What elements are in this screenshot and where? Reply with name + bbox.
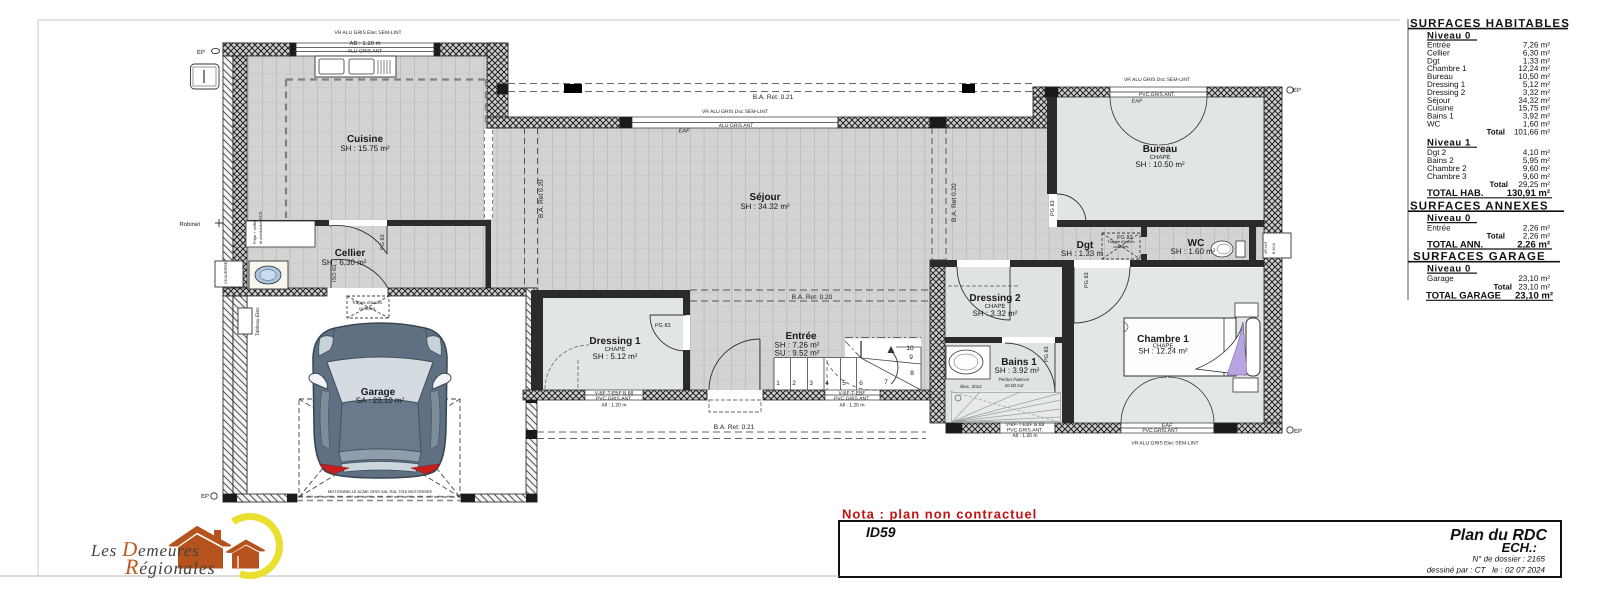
svg-text:SU : 9.52 m²: SU : 9.52 m² bbox=[775, 349, 820, 358]
svg-text:8: 8 bbox=[910, 370, 914, 377]
svg-text:Total: Total bbox=[1489, 180, 1508, 189]
svg-text:combles: combles bbox=[1114, 244, 1129, 249]
svg-text:B.A. Ret: 0.21: B.A. Ret: 0.21 bbox=[753, 94, 794, 101]
svg-text:CHAUDIERE: CHAUDIERE bbox=[224, 261, 228, 284]
svg-text:6: 6 bbox=[859, 380, 863, 387]
svg-text:Garage: Garage bbox=[1427, 274, 1454, 283]
svg-text:SH : 1.60 m²: SH : 1.60 m² bbox=[1171, 247, 1216, 256]
svg-text:B.A. Ret: 0.21: B.A. Ret: 0.21 bbox=[714, 424, 755, 431]
svg-text:ALU GRIS ANT: ALU GRIS ANT bbox=[348, 49, 382, 55]
svg-text:SH : 1.33 m: SH : 1.33 m bbox=[1061, 249, 1104, 258]
svg-text:3: 3 bbox=[809, 380, 813, 387]
svg-text:PVC.GRIS.ANT.: PVC.GRIS.ANT. bbox=[834, 396, 870, 402]
svg-text:2: 2 bbox=[792, 380, 796, 387]
svg-text:EP: EP bbox=[1294, 428, 1302, 435]
svg-text:PVC.GRIS.ANT.: PVC.GRIS.ANT. bbox=[596, 396, 632, 402]
svg-text:All : 1.20 m: All : 1.20 m bbox=[839, 403, 864, 409]
svg-text:Régionales: Régionales bbox=[124, 554, 215, 579]
svg-text:EP: EP bbox=[201, 493, 209, 500]
svg-text:B.A. Ret 0.20: B.A. Ret 0.20 bbox=[538, 179, 545, 218]
svg-text:1: 1 bbox=[776, 380, 780, 387]
svg-text:N° de dossier : 2165: N° de dossier : 2165 bbox=[1472, 555, 1545, 564]
svg-text:Nota : plan non contractuel: Nota : plan non contractuel bbox=[842, 507, 1037, 522]
svg-text:ECH.:: ECH.: bbox=[1502, 540, 1537, 555]
svg-text:Trappe d'accès: Trappe d'accès bbox=[352, 300, 383, 305]
svg-text:EP: EP bbox=[197, 49, 205, 56]
svg-text:All : 1.20 m: All : 1.20 m bbox=[601, 403, 626, 409]
svg-text:10.00 m2: 10.00 m2 bbox=[1005, 383, 1024, 388]
svg-text:VR-LNT: VR-LNT bbox=[1264, 240, 1268, 254]
svg-text:PG 83: PG 83 bbox=[655, 323, 671, 329]
svg-text:B.A. Ret: 0.20: B.A. Ret: 0.20 bbox=[792, 294, 833, 301]
svg-text:All : 1.20 m: All : 1.20 m bbox=[1012, 433, 1037, 439]
svg-text:EAF: EAF bbox=[679, 129, 690, 135]
svg-text:SA : 23,10 m²: SA : 23,10 m² bbox=[356, 396, 405, 405]
svg-text:Elec. 2012: Elec. 2012 bbox=[960, 384, 982, 389]
svg-text:PG 83: PG 83 bbox=[1117, 235, 1133, 241]
svg-text:WC: WC bbox=[1427, 120, 1441, 129]
svg-text:SH : 3.32 m²: SH : 3.32 m² bbox=[973, 309, 1018, 318]
svg-text:5: 5 bbox=[842, 380, 846, 387]
svg-text:4: 4 bbox=[825, 380, 829, 387]
svg-text:Dressing 1: Dressing 1 bbox=[589, 336, 641, 347]
svg-text:SH : 34.32 m²: SH : 34.32 m² bbox=[740, 202, 790, 211]
svg-text:7: 7 bbox=[884, 379, 888, 386]
svg-text:Total: Total bbox=[1486, 232, 1505, 241]
svg-text:AB : 1.20 m: AB : 1.20 m bbox=[349, 40, 380, 47]
svg-text:PVC.GRIS.ANT.: PVC.GRIS.ANT. bbox=[1139, 92, 1175, 98]
svg-text:ID59: ID59 bbox=[866, 524, 896, 540]
svg-text:Chambre 3: Chambre 3 bbox=[1427, 172, 1467, 181]
svg-text:dessiné par : CT le : 02 07: dessiné par : CT le : 02 07 2024 bbox=[1427, 566, 1546, 575]
svg-text:ISO 83: ISO 83 bbox=[332, 265, 338, 282]
svg-text:ALU GRIS ANT: ALU GRIS ANT bbox=[719, 123, 753, 129]
svg-text:Perfort Faience: Perfort Faience bbox=[999, 377, 1030, 382]
svg-text:combles: combles bbox=[359, 306, 377, 311]
svg-text:SH : 5.12 m²: SH : 5.12 m² bbox=[593, 352, 638, 361]
svg-text:PG 83: PG 83 bbox=[1084, 272, 1090, 288]
svg-text:SH : 10.50 m²: SH : 10.50 m² bbox=[1135, 160, 1185, 169]
svg-text:VR ALU GRIS Elec SEM-LINT: VR ALU GRIS Elec SEM-LINT bbox=[334, 30, 401, 36]
svg-text:Tableau Elec: Tableau Elec bbox=[255, 307, 261, 336]
svg-text:EP: EP bbox=[1293, 87, 1301, 94]
svg-text:9: 9 bbox=[909, 354, 913, 361]
svg-text:Dressing 2: Dressing 2 bbox=[969, 293, 1021, 304]
svg-text:SH : 15.75 m²: SH : 15.75 m² bbox=[340, 144, 390, 153]
svg-text:SH : 6,30 m²: SH : 6,30 m² bbox=[322, 258, 367, 267]
svg-text:PVC.GRIS.ANT: PVC.GRIS.ANT bbox=[1142, 428, 1177, 434]
svg-text:MOTIONNELLE ACME GRIS SAL RAL: MOTIONNELLE ACME GRIS SAL RAL 7016 MOTOR… bbox=[328, 489, 433, 494]
svg-text:10: 10 bbox=[906, 345, 914, 352]
svg-text:EAF: EAF bbox=[1132, 99, 1143, 105]
svg-text:PG 83: PG 83 bbox=[1044, 346, 1050, 362]
svg-text:VR ALU GRIS Dsc SEM-LINT: VR ALU GRIS Dsc SEM-LINT bbox=[1124, 77, 1190, 83]
svg-text:VR ALU GRIS Dsc SEM-LINT: VR ALU GRIS Dsc SEM-LINT bbox=[702, 109, 768, 115]
svg-text:Frigo + cellier: Frigo + cellier bbox=[252, 219, 257, 244]
svg-text:Bureau: Bureau bbox=[1143, 144, 1177, 155]
svg-text:101,66 m²: 101,66 m² bbox=[1514, 128, 1550, 137]
svg-text:Entrée: Entrée bbox=[1427, 223, 1451, 232]
svg-text:Total: Total bbox=[1486, 128, 1505, 137]
svg-text:B 2016: B 2016 bbox=[1272, 243, 1276, 254]
svg-text:Robinet: Robinet bbox=[179, 221, 200, 228]
svg-text:SH : 3.92 m²: SH : 3.92 m² bbox=[995, 366, 1040, 375]
svg-text:B.A. Ret 0.20: B.A. Ret 0.20 bbox=[951, 183, 958, 222]
svg-text:et production ECS: et production ECS bbox=[258, 211, 263, 244]
svg-text:SH : 12.24 m²: SH : 12.24 m² bbox=[1138, 347, 1188, 356]
svg-text:PG 83: PG 83 bbox=[1050, 200, 1056, 216]
svg-text:VR ALU GRIS Elec SEM-LINT: VR ALU GRIS Elec SEM-LINT bbox=[1131, 441, 1198, 447]
